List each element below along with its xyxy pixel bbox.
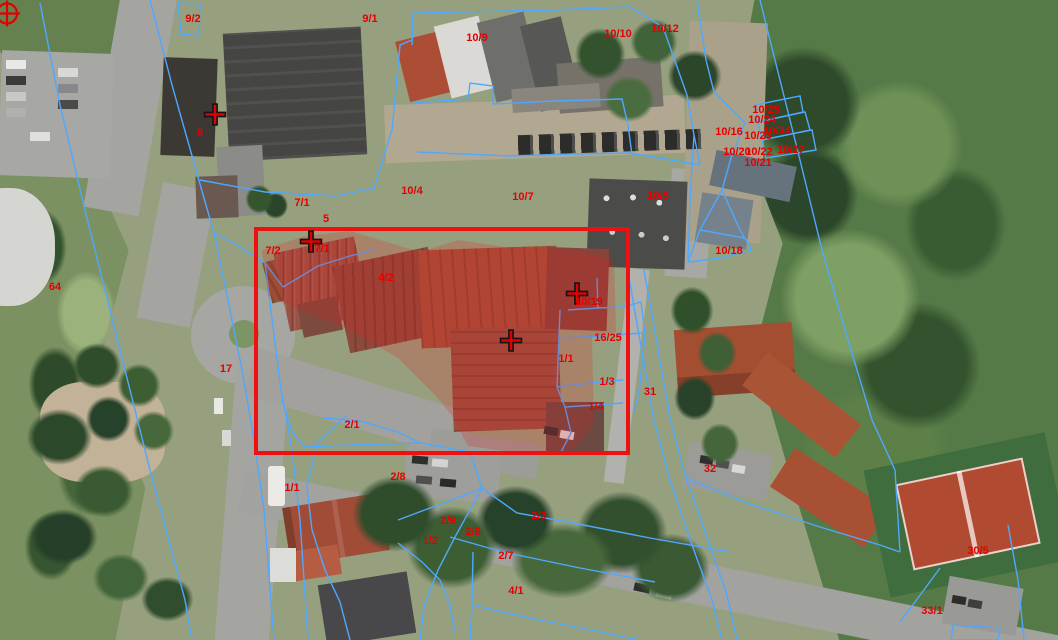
parcel-label: 32 (704, 463, 716, 475)
parcel-label: 10/16 (715, 126, 743, 138)
parcel-label: 9/1 (362, 13, 377, 25)
parcel-label: 30/5 (967, 545, 988, 557)
parcel-label: 10/9 (466, 32, 487, 44)
parcel-label: 4/1 (508, 585, 523, 597)
parcel-label: 1/1 (558, 353, 573, 365)
parcel-label: 1/3 (599, 376, 614, 388)
parcel-label: 8 (197, 127, 203, 139)
trees-bottom-left (0, 380, 260, 640)
parcel-label: 1/4 (588, 401, 603, 413)
building-blue-roof-b (694, 192, 753, 250)
parcel-label: 7/1 (294, 197, 309, 209)
car (30, 132, 50, 141)
car (6, 60, 26, 69)
parcel-label: 31 (644, 386, 656, 398)
parcel-label: 16/25 (594, 332, 622, 344)
parcel-label: 10/18 (715, 245, 743, 257)
parcel-label: 2/9 (440, 515, 455, 527)
parcel-label: 1/1 (284, 482, 299, 494)
parcel-label: 2/3 (531, 510, 546, 522)
parcel-label: 7/1 (314, 243, 329, 255)
control-point-circle-marker (0, 0, 24, 36)
roundabout-island (229, 320, 259, 348)
parcel-label: 33/1 (921, 605, 942, 617)
survey-cross-marker (500, 329, 523, 357)
building-warehouse (223, 26, 368, 161)
parcel-label: 5 (323, 213, 329, 225)
parcel-label: 10/4 (401, 185, 422, 197)
parcel-label: 10/34 (763, 125, 791, 137)
building-small-white-shop (270, 548, 296, 582)
parcel-label: 10/10 (604, 28, 632, 40)
parcel-label: 2/7 (498, 550, 513, 562)
parcel-label: 10/19 (575, 296, 603, 308)
car (6, 92, 26, 101)
car (58, 100, 78, 109)
car (58, 68, 78, 77)
car (6, 108, 26, 117)
bus (268, 466, 285, 506)
parcel-label: 2/8 (390, 471, 405, 483)
parcel-label: 10/21 (744, 157, 772, 169)
parcel-label: 9/2 (185, 13, 200, 25)
parcel-label: 4/2 (378, 272, 393, 284)
parcel-label: 10/7 (512, 191, 533, 203)
parcel-label: 64 (49, 281, 61, 293)
parcel-label: 1/2 (422, 535, 437, 547)
parcel-label: 10/12 (651, 23, 679, 35)
parcel-label: 2/6 (465, 526, 480, 538)
parcel-label: 10/5 (647, 190, 668, 202)
car (58, 84, 78, 93)
parcel-label: 10/27 (777, 144, 805, 156)
survey-cross-marker (204, 103, 227, 131)
parcel-label: 7/2 (265, 245, 280, 257)
map-viewport[interactable]: 9/29/110/910/1010/12810/2510/2410/1610/2… (0, 0, 1058, 640)
parcel-label: 2/1 (344, 419, 359, 431)
building-small-house (195, 175, 238, 218)
car (6, 76, 26, 85)
parcel-label: 17 (220, 363, 232, 375)
